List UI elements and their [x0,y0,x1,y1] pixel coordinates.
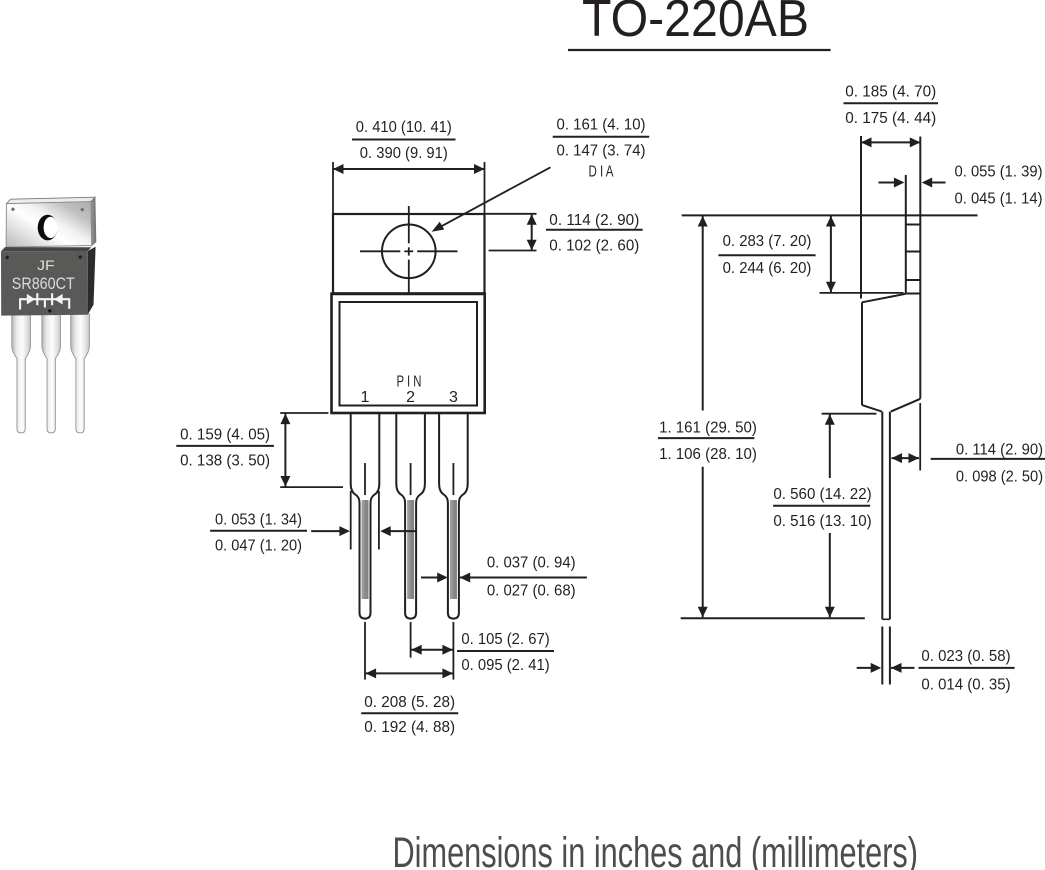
svg-text:Dimensions in inches and (mill: Dimensions in inches and (millimeters) [393,829,919,870]
svg-text:0. 098 (2. 50): 0. 098 (2. 50) [956,469,1043,486]
svg-text:0. 185 (4. 70): 0. 185 (4. 70) [845,83,936,100]
svg-text:0. 047 (1. 20): 0. 047 (1. 20) [215,538,302,555]
svg-text:0. 027 (0. 68): 0. 027 (0. 68) [487,583,576,600]
svg-text:JF: JF [37,258,55,273]
svg-text:0. 159 (4. 05): 0. 159 (4. 05) [180,426,270,443]
svg-text:0. 045 (1. 14): 0. 045 (1. 14) [955,191,1043,208]
svg-text:0. 208 (5. 28): 0. 208 (5. 28) [364,694,455,711]
svg-text:D I A: D I A [589,163,614,180]
svg-text:1: 1 [361,389,370,406]
svg-text:0. 283 (7. 20): 0. 283 (7. 20) [723,233,812,250]
svg-text:0. 192 (4. 88): 0. 192 (4. 88) [364,719,455,736]
svg-text:0. 114 (2. 90): 0. 114 (2. 90) [549,212,639,229]
svg-text:0. 105 (2. 67): 0. 105 (2. 67) [461,631,549,648]
svg-text:P I N: P I N [397,373,422,390]
svg-text:0. 390 (9. 91): 0. 390 (9. 91) [360,145,448,162]
svg-text:1. 161 (29. 50): 1. 161 (29. 50) [659,420,757,437]
svg-text:0. 244 (6. 20): 0. 244 (6. 20) [723,260,812,277]
svg-text:2: 2 [406,389,415,406]
svg-text:0. 055 (1. 39): 0. 055 (1. 39) [955,164,1043,181]
svg-text:0. 114 (2. 90): 0. 114 (2. 90) [956,442,1043,459]
svg-text:0. 516 (13. 10): 0. 516 (13. 10) [773,513,871,530]
svg-text:0. 023 (0. 58): 0. 023 (0. 58) [921,648,1010,665]
svg-text:TO-220AB: TO-220AB [582,0,809,48]
svg-text:0. 560 (14. 22): 0. 560 (14. 22) [773,486,871,503]
svg-text:SR860CT: SR860CT [12,275,75,293]
svg-text:0. 175 (4. 44): 0. 175 (4. 44) [845,110,936,127]
svg-text:0. 053 (1. 34): 0. 053 (1. 34) [215,512,302,529]
svg-text:0. 161 (4. 10): 0. 161 (4. 10) [557,116,646,133]
svg-text:1. 106 (28. 10): 1. 106 (28. 10) [659,446,757,463]
svg-text:0. 410 (10. 41): 0. 410 (10. 41) [356,119,452,136]
svg-text:0. 037 (0. 94): 0. 037 (0. 94) [487,555,576,572]
svg-text:0. 102 (2. 60): 0. 102 (2. 60) [549,238,639,255]
svg-text:0. 014 (0. 35): 0. 014 (0. 35) [921,676,1010,693]
svg-text:3: 3 [449,389,458,406]
svg-text:0. 138 (3. 50): 0. 138 (3. 50) [180,452,270,469]
svg-text:0. 147 (3. 74): 0. 147 (3. 74) [557,143,646,160]
svg-text:0. 095 (2. 41): 0. 095 (2. 41) [461,657,549,674]
